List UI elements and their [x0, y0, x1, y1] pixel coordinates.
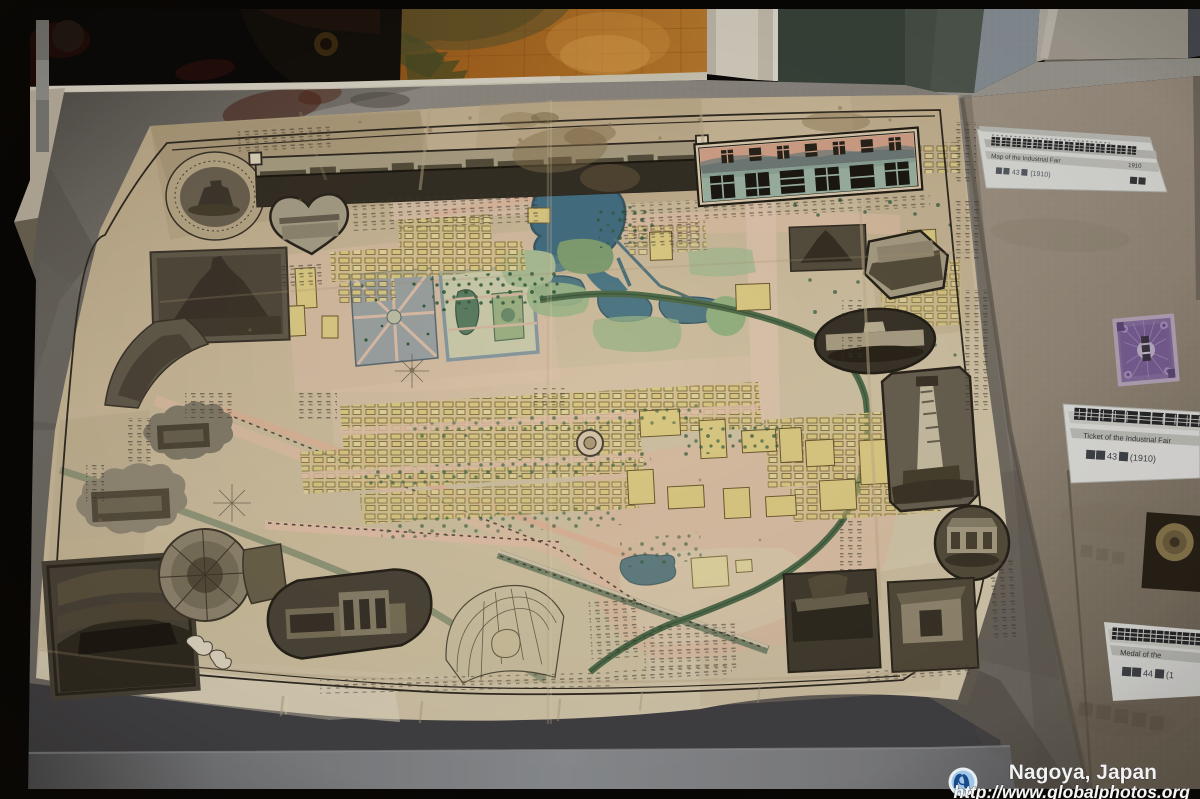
svg-text:Nagoya, Japan: Nagoya, Japan	[1009, 761, 1157, 784]
svg-text:http://www.globalphotos.org: http://www.globalphotos.org	[953, 782, 1190, 799]
